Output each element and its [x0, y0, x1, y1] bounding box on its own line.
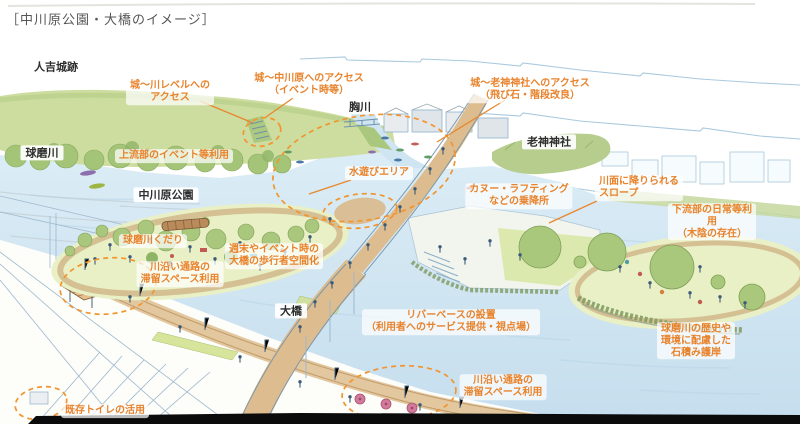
sketch-canvas: ［中川原公園・大橋のイメージ］ 人吉城跡 胸川 老神神社 球磨川 中川原公園 大…: [0, 0, 800, 424]
illustration: [0, 0, 800, 424]
